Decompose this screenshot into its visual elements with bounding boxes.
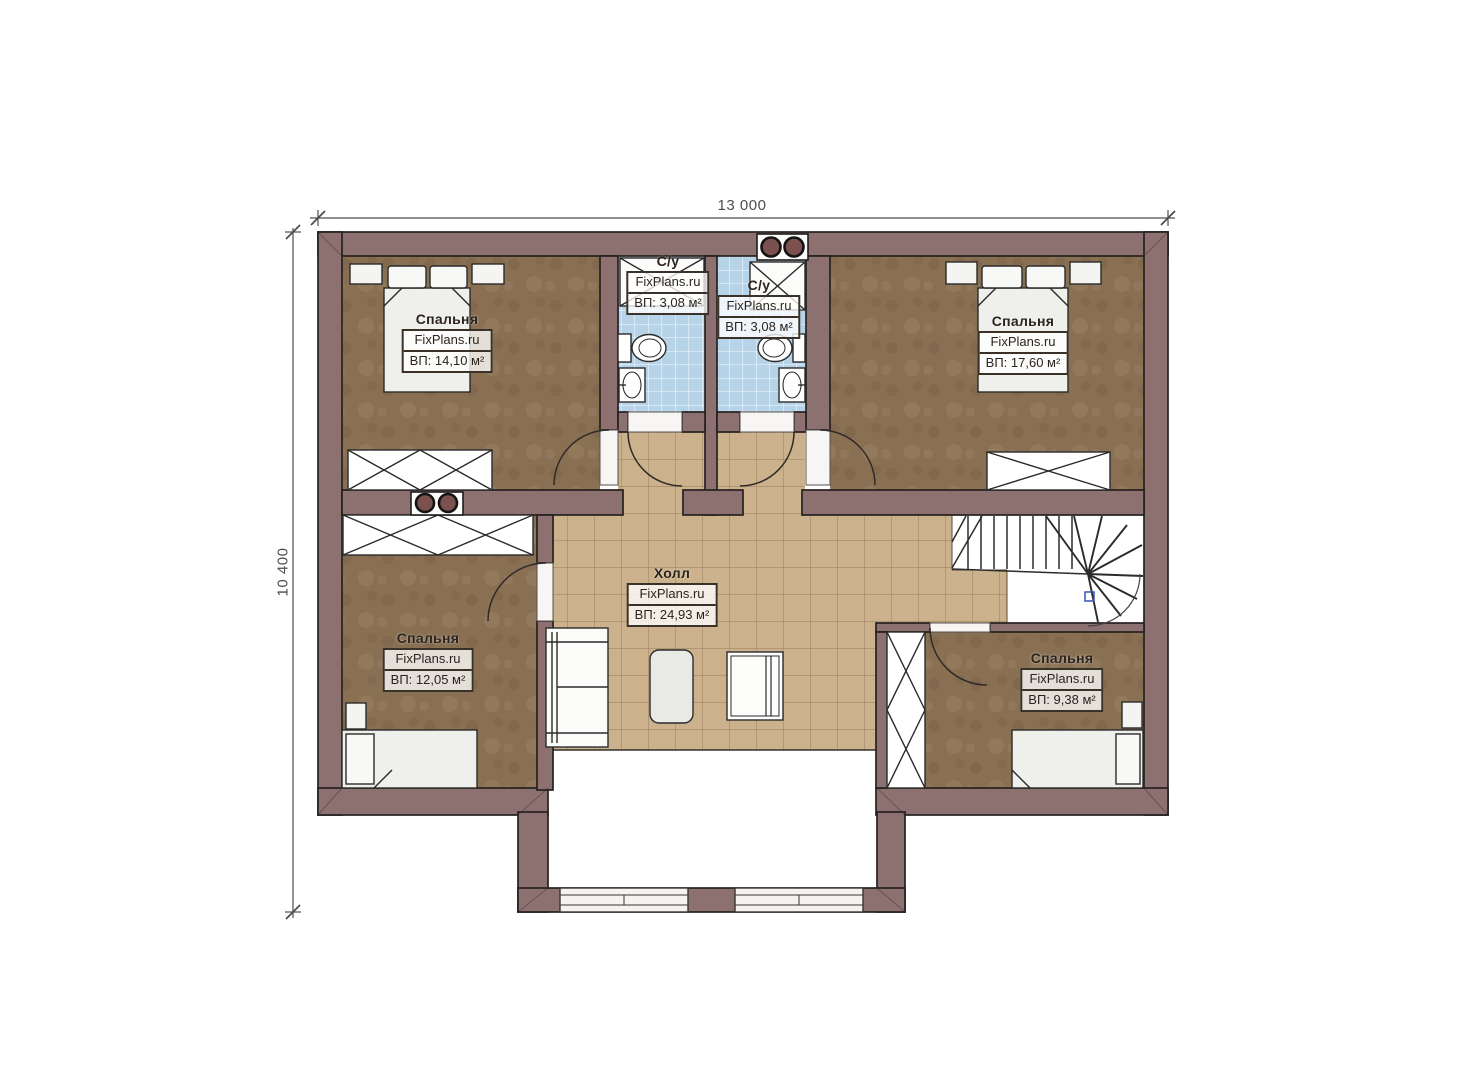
wall-bottom-right [876,788,1168,815]
wall-bath-right-south [794,412,806,432]
shower-icon [620,258,704,306]
shower-icon [750,262,805,310]
sink-icon [619,368,645,402]
tv-stand-icon [727,652,783,720]
wall-bath-left-west [600,256,618,430]
chimney-icon [411,492,463,515]
door-threshold [740,412,794,432]
door-threshold [628,412,682,432]
terrace-void [548,750,877,888]
wall-bedroom-br-west [876,632,888,788]
wardrobe-icon [348,450,492,490]
wall-top [318,232,1168,256]
wall-bath-right-east [806,256,830,430]
chimney-icon [757,234,808,260]
hall-floor [553,570,1007,623]
window [735,888,863,912]
wall-bath-divider [705,256,717,515]
door-threshold [537,563,553,621]
wardrobe-icon [343,515,533,555]
toilet-icon [618,334,666,362]
wall-bath-left-south [618,412,628,432]
floor-plan-drawing [0,0,1473,1080]
wardrobe-icon [887,632,925,788]
wardrobe-icon [987,452,1110,490]
wall-bath-right-south [717,412,740,432]
window [560,888,688,912]
hall-floor [553,515,952,570]
door-threshold [806,430,830,485]
wall-bedroom-br-north [990,623,1144,632]
wall-right [1144,232,1168,815]
toilet-icon [758,334,805,362]
sofa-icon [546,628,608,747]
wall-bath-left-south [682,412,705,432]
stair-landing [1007,570,1144,623]
wall-bedroom-tr-south [802,490,1144,515]
wall-bedroom-bl-east [537,515,553,563]
wall-bedroom-tl-south [342,490,623,515]
sink-icon [779,368,805,402]
floor-plan: 13 000 10 400 Спальня FixPlans.ru ВП: 14… [0,0,1473,1080]
wall-bedroom-br-north [876,623,930,632]
wall-corridor-pier [683,490,743,515]
wall-left [318,232,342,815]
wall-bottom-left [318,788,548,815]
door-threshold [930,623,990,632]
coffee-table-icon [650,650,693,723]
door-threshold [600,430,618,485]
